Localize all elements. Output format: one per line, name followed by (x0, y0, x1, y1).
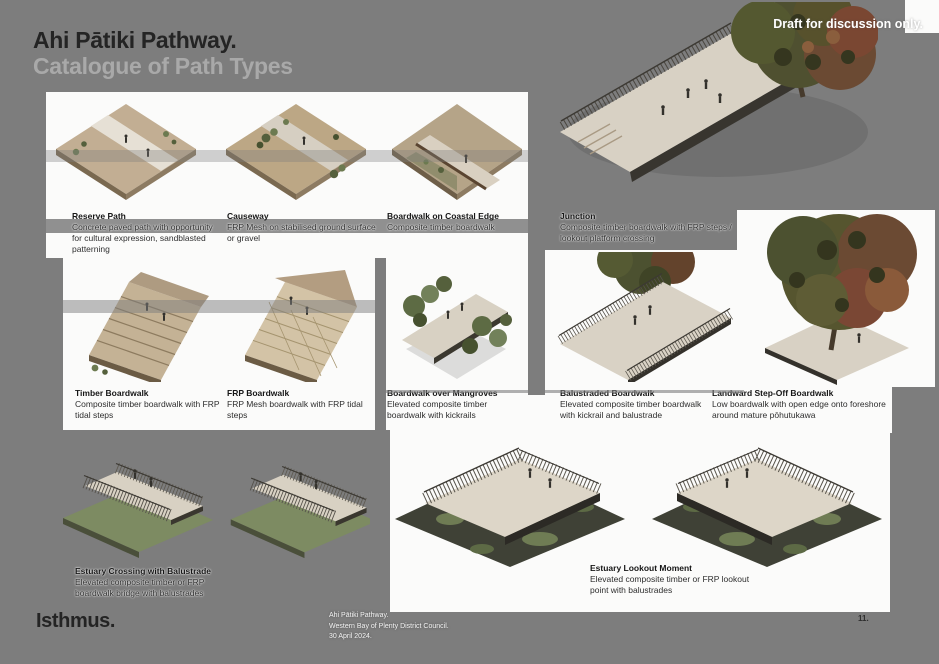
isthmus-logo: Isthmus. (36, 610, 115, 633)
caption-landward-stepoff: Landward Step-Off Boardwalk Low boardwal… (712, 388, 890, 421)
path-type-title: Estuary Crossing with Balustrade (75, 566, 227, 576)
footer-block: Ahi Pātiki Pathway. Western Bay of Plent… (329, 611, 449, 643)
balustraded-boardwalk-illustration (545, 252, 745, 382)
caption-timber-boardwalk: Timber Boardwalk Composite timber boardw… (75, 388, 223, 421)
landward-panel (737, 210, 935, 387)
page-title-line2: Catalogue of Path Types (33, 53, 293, 79)
path-type-title: Boardwalk on Coastal Edge (387, 211, 527, 221)
path-type-description: Concrete paved path with opportunity for… (72, 222, 218, 256)
estuary-crossing-illustration (55, 430, 370, 562)
frp-boardwalk-illustration (225, 260, 375, 382)
caption-balustraded: Balustraded Boardwalk Elevated composite… (560, 388, 706, 421)
gray-artifact-stripe (386, 390, 744, 393)
junction-illustration (548, 2, 878, 208)
path-type-description: FRP Mesh boardwalk with FRP tidal steps (227, 399, 375, 421)
caption-estuary-lookout: Estuary Lookout Moment Elevated composit… (590, 563, 765, 596)
caption-causeway: Causeway FRP Mesh on stabilised ground s… (227, 211, 379, 244)
gray-artifact-stripe (63, 300, 375, 313)
path-type-title: Causeway (227, 211, 379, 221)
caption-estuary-crossing: Estuary Crossing with Balustrade Elevate… (75, 566, 227, 599)
timber-boardwalk-illustration (69, 260, 219, 382)
path-type-description: Composite timber boardwalk with FRP tida… (75, 399, 223, 421)
path-type-description: Elevated composite timber or FRP lookout… (590, 574, 765, 596)
caption-coastal-edge: Boardwalk on Coastal Edge Composite timb… (387, 211, 527, 233)
footer-project: Ahi Pātiki Pathway. (329, 611, 449, 622)
gray-artifact-stripe (46, 150, 528, 162)
path-type-title: Junction (560, 211, 732, 221)
footer-date: 30 April 2024. (329, 632, 449, 643)
page-title-line1: Ahi Pātiki Pathway. (33, 27, 293, 53)
landward-stepoff-illustration (737, 210, 935, 387)
path-type-description: Composite timber boardwalk with FRP step… (560, 222, 732, 244)
path-type-description: Low boardwalk with open edge onto foresh… (712, 399, 890, 421)
catalogue-page: Ahi Pātiki Pathway. Catalogue of Path Ty… (0, 0, 939, 664)
path-type-description: Elevated composite timber boardwalk with… (560, 399, 706, 421)
page-number: 11. (858, 614, 869, 623)
path-type-description: FRP Mesh on stabilised ground surface or… (227, 222, 379, 244)
page-title: Ahi Pātiki Pathway. Catalogue of Path Ty… (33, 27, 293, 80)
footer-client: Western Bay of Plenty District Council. (329, 622, 449, 633)
path-type-title: Timber Boardwalk (75, 388, 223, 398)
path-type-description: Composite timber boardwalk (387, 222, 527, 233)
path-type-title: Reserve Path (72, 211, 218, 221)
draft-note: Draft for discussion only. (773, 17, 923, 31)
caption-junction: Junction Composite timber boardwalk with… (560, 211, 732, 244)
path-type-description: Elevated composite timber boardwalk with… (387, 399, 527, 421)
caption-frp-boardwalk: FRP Boardwalk FRP Mesh boardwalk with FR… (227, 388, 375, 421)
path-type-description: Elevated composite timber or FRP boardwa… (75, 577, 227, 599)
mangroves-illustration (386, 254, 528, 382)
path-type-title: Estuary Lookout Moment (590, 563, 765, 573)
caption-reserve-path: Reserve Path Concrete paved path with op… (72, 211, 218, 256)
path-type-title: FRP Boardwalk (227, 388, 375, 398)
caption-mangroves: Boardwalk over Mangroves Elevated compos… (387, 388, 527, 421)
